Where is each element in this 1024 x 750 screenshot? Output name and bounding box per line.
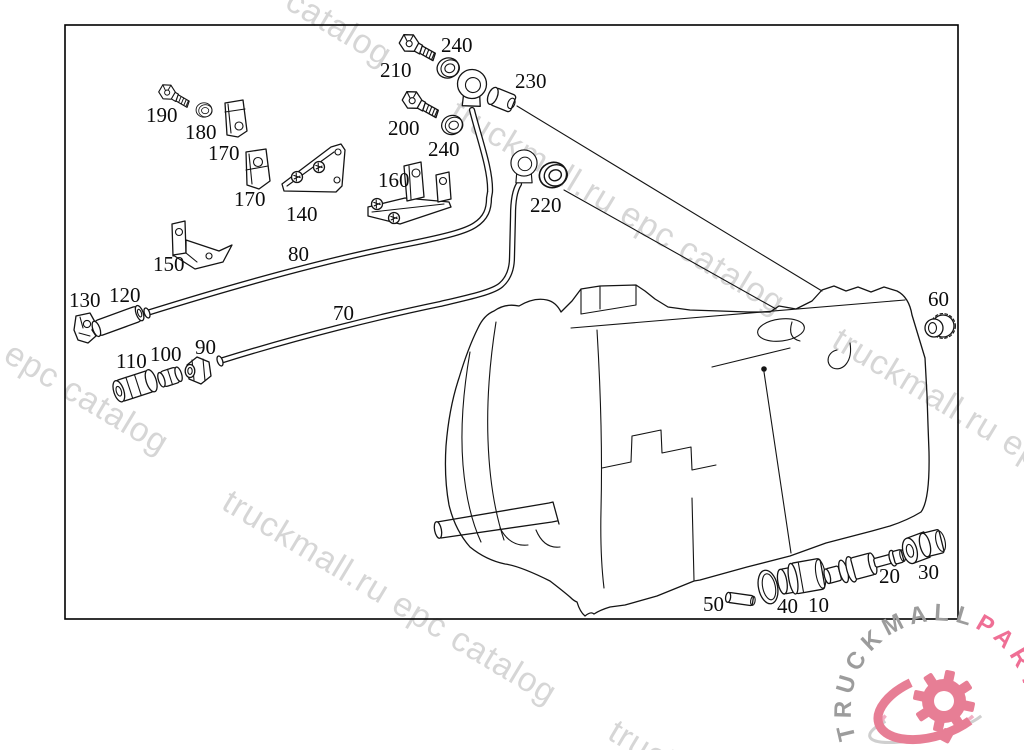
callout-30: 30	[918, 560, 939, 584]
leader-dot	[761, 366, 767, 372]
gearbox-top-ridge	[571, 300, 905, 328]
callout-10: 10	[808, 593, 829, 617]
callout-70: 70	[333, 301, 354, 325]
bell-rib	[462, 352, 481, 542]
callout-90: 90	[195, 335, 216, 359]
callout-60: 60	[928, 287, 949, 311]
callout-20: 20	[879, 564, 900, 588]
parts-diagram-page: truckmall.ru epc catalog truckmall.ru ep…	[0, 0, 1024, 750]
part-170-clamp-upper	[225, 100, 247, 137]
watermark-text: truckmall.ru epc catalog	[826, 320, 1024, 550]
gearbox-tower-lines	[581, 285, 636, 314]
callout-240-lower: 240	[428, 137, 460, 161]
callout-120: 120	[109, 283, 141, 307]
gearbox-stair-lines	[602, 430, 716, 470]
callout-50: 50	[703, 592, 724, 616]
output-shaft	[433, 502, 559, 539]
logo-parts-text: PARTS	[972, 609, 1024, 716]
gearbox-divider	[597, 330, 604, 588]
svg-text:TRUCKMALLPARTS: TRUCKMALLPARTS	[830, 599, 1024, 743]
part-110-union	[111, 368, 160, 403]
callout-210: 210	[380, 58, 412, 82]
callout-190: 190	[146, 103, 178, 127]
callout-130: 130	[69, 288, 101, 312]
callout-140: 140	[286, 202, 318, 226]
part-180-nut	[196, 103, 212, 117]
gearbox-front-edge	[692, 498, 694, 580]
watermark-text: truckmall.ru epc catalog	[216, 482, 564, 712]
part-10-piston	[775, 558, 828, 597]
watermark-text: truckmall.ru epc catalog	[602, 712, 950, 750]
leader-line-230	[517, 106, 822, 291]
truckmall-parts-logo: TRUCKMALLPARTS	[830, 599, 1024, 750]
callout-170-upper: 170	[208, 141, 240, 165]
bell-flange-curls	[500, 528, 560, 547]
callout-180: 180	[185, 120, 217, 144]
callout-100: 100	[150, 342, 182, 366]
filler-opening	[756, 316, 805, 344]
callout-230: 230	[515, 69, 547, 93]
watermark-text: truckmall.ru epc catalog	[51, 0, 399, 74]
callout-220: 220	[530, 193, 562, 217]
part-140-bracket	[282, 144, 345, 192]
callout-80: 80	[288, 242, 309, 266]
leader-line-220	[564, 190, 776, 309]
callout-200: 200	[388, 116, 420, 140]
leader-line-dot	[764, 372, 791, 553]
part-170-clamp-lower	[246, 149, 270, 189]
casting-hook-small	[791, 322, 800, 341]
part-60-plug	[925, 314, 955, 339]
callout-170-lower: 170	[234, 187, 266, 211]
gearbox-detail-line	[712, 348, 790, 367]
callout-160: 160	[378, 168, 410, 192]
callout-110: 110	[116, 349, 147, 373]
callout-150: 150	[153, 252, 185, 276]
gear-icon	[913, 670, 976, 744]
part-90-nut	[185, 357, 211, 384]
part-50-pin	[725, 592, 756, 606]
bell-rib	[488, 322, 504, 540]
part-100-sleeve	[156, 366, 184, 389]
part-240-washer-upper	[434, 55, 461, 81]
callout-40: 40	[777, 594, 798, 618]
callout-240-upper: 240	[441, 33, 473, 57]
parts-diagram-canvas: truckmall.ru epc catalog truckmall.ru ep…	[0, 0, 1024, 750]
